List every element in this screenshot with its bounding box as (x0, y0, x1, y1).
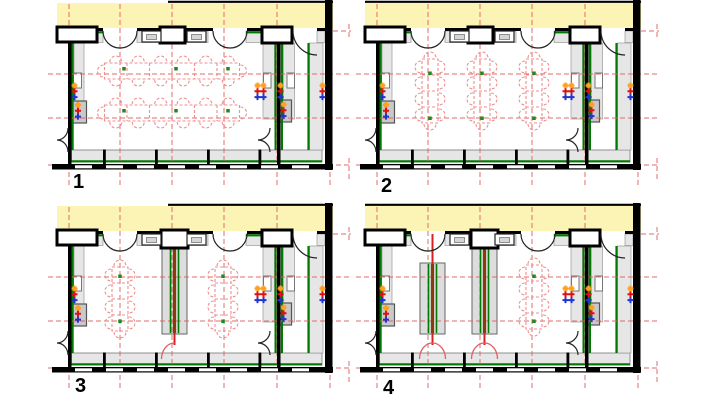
floor-plan-option-2 (356, 0, 659, 187)
option-4-label: 4 (383, 378, 394, 398)
option-3-label: 3 (75, 376, 86, 396)
floor-plan-option-1 (48, 0, 351, 187)
floor-plans-drawing (0, 0, 710, 406)
floor-plan-option-3 (48, 203, 351, 390)
floor-plan-options-sheet: 1 2 3 4 (0, 0, 710, 406)
floor-plan-option-4 (356, 203, 659, 390)
option-2-label: 2 (381, 176, 392, 196)
partitions (420, 234, 498, 359)
tables (519, 258, 549, 336)
option-1-label: 1 (73, 172, 84, 192)
